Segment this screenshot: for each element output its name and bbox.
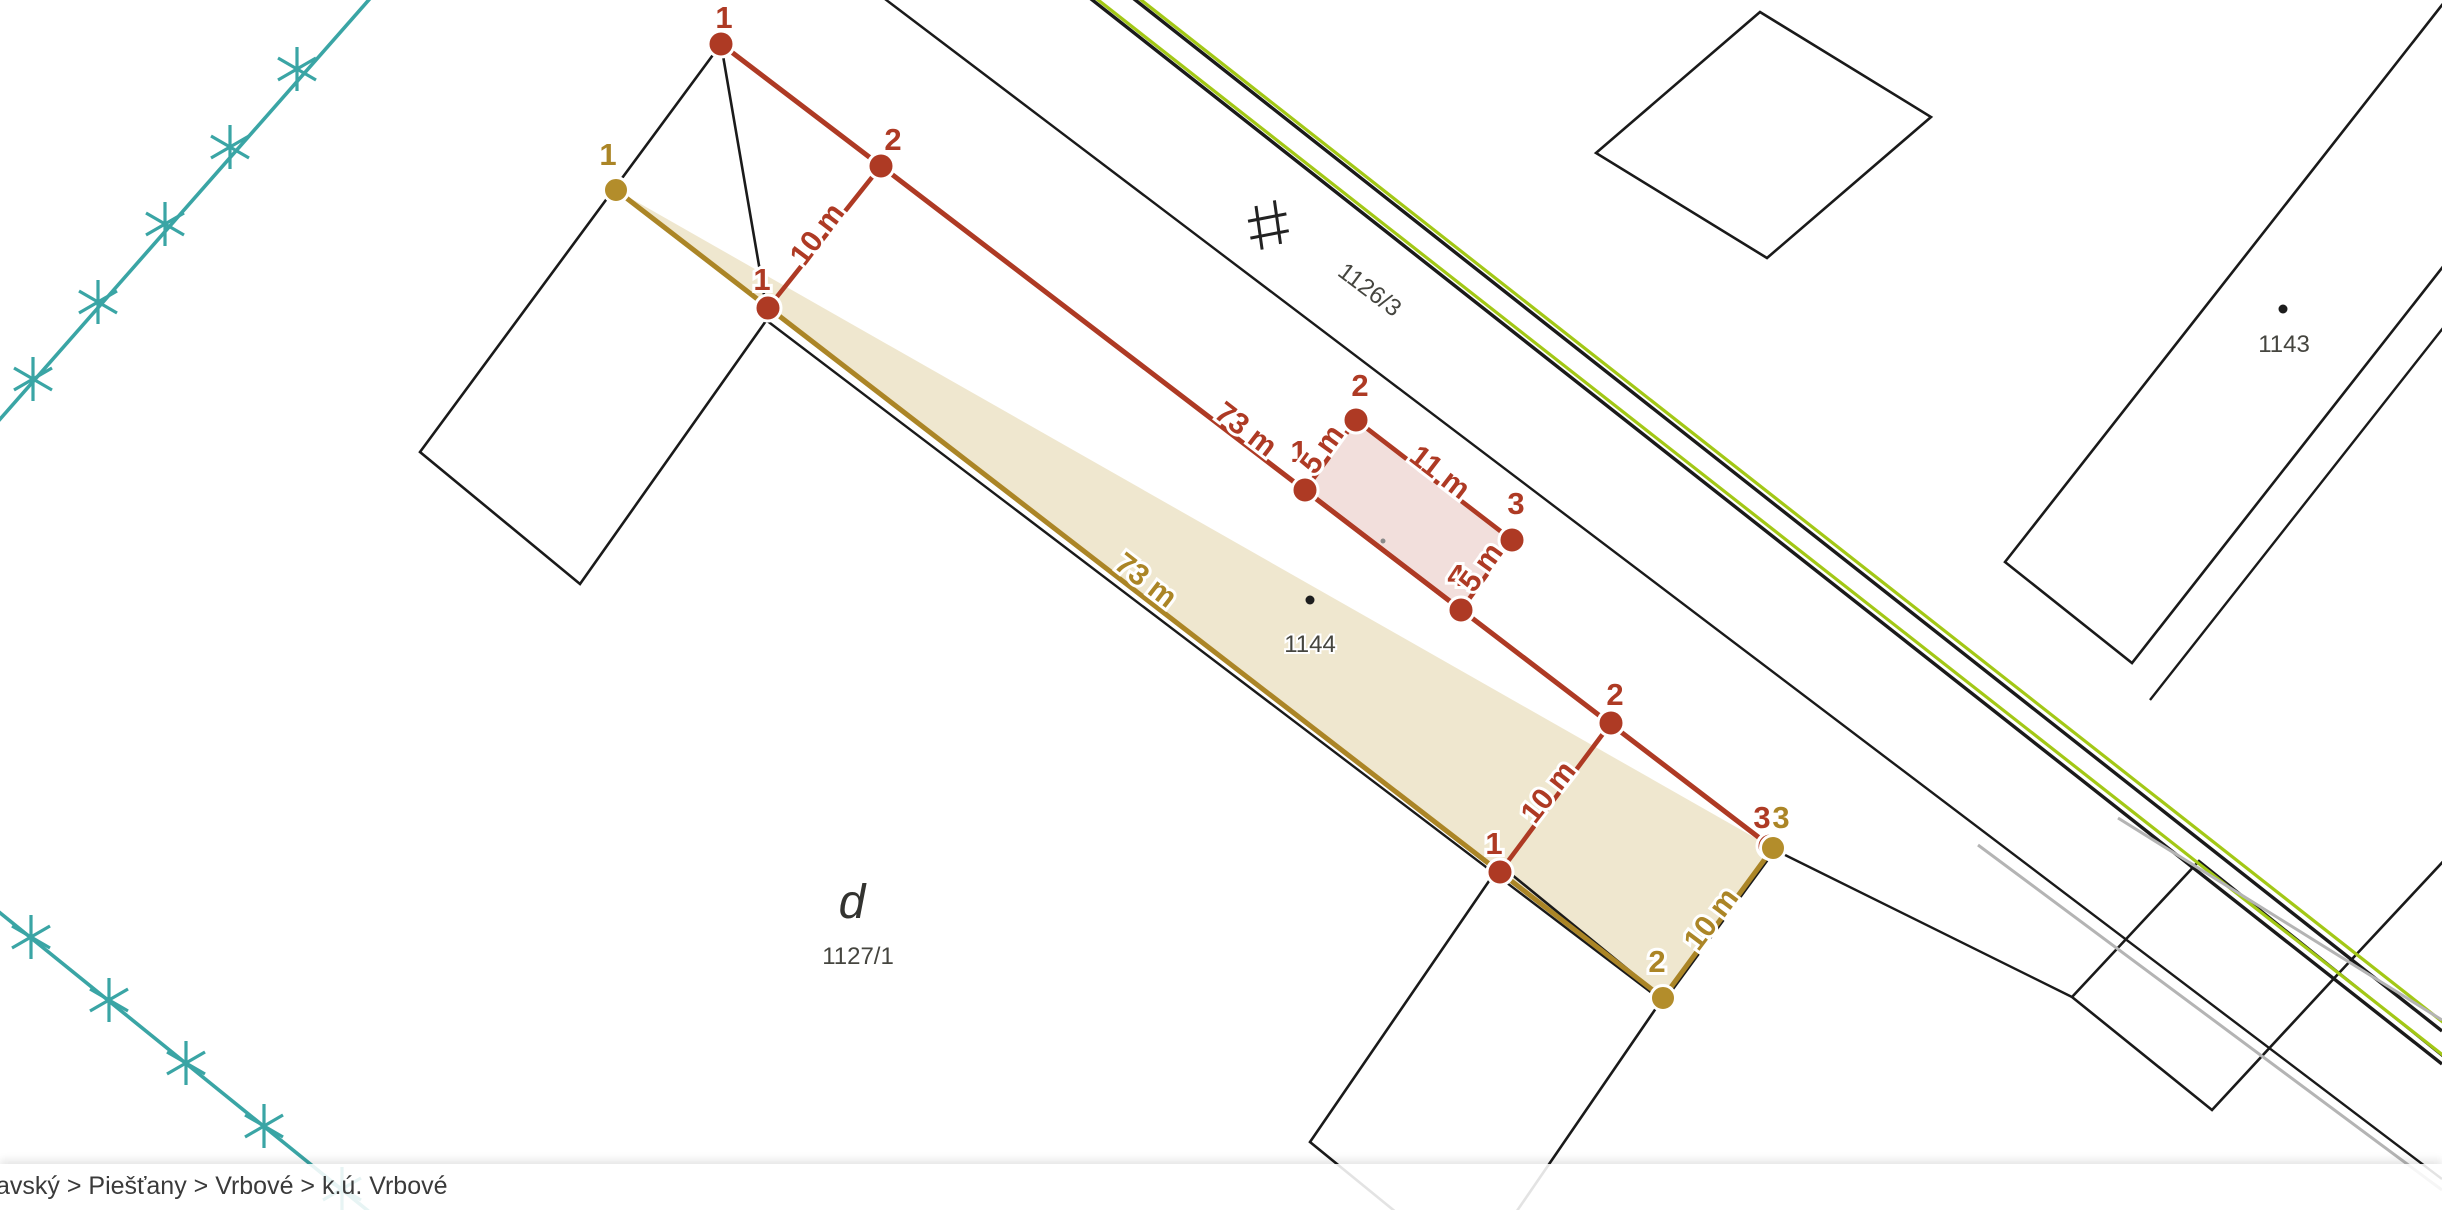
road-edge-right xyxy=(1129,0,2442,1031)
vertex-label: 1 xyxy=(1485,826,1502,861)
vertex-dot[interactable] xyxy=(1343,407,1369,433)
parcel-boundary-to-buildings xyxy=(1775,850,2072,997)
land-use-letter-d: d xyxy=(839,876,867,929)
vertex-label: 3 xyxy=(1507,486,1524,521)
vertex-dot-olive[interactable] xyxy=(604,178,629,203)
gray-path-line-1 xyxy=(1978,845,2442,1190)
olive-measured-area-fill xyxy=(616,190,1773,998)
vertex-label-olive: 1 xyxy=(599,137,616,172)
vertex-label: 2 xyxy=(884,122,901,157)
utility-star-icon xyxy=(146,202,184,246)
utility-star-icon xyxy=(12,915,50,959)
building-bottom-right-1 xyxy=(2072,861,2339,1110)
building-top-right xyxy=(1596,12,1931,258)
fence-symbol-icon xyxy=(1246,199,1291,251)
utility-star-icon xyxy=(167,1041,205,1085)
vertex-dot-olive[interactable] xyxy=(1761,836,1786,861)
parcel-label-1144: 1144 xyxy=(1284,631,1336,658)
vertex-dot[interactable] xyxy=(1487,859,1513,885)
map-canvas[interactable]: 1 2 3 73 m 1 10 m 1 2 10 m 1 2 3 4 5 m 1… xyxy=(0,0,2442,1210)
parcel-label-1126-3: 1126/3 xyxy=(1333,258,1406,323)
building-upper-left xyxy=(420,44,768,584)
buildings xyxy=(420,5,2442,1210)
utility-star-icon xyxy=(79,280,117,324)
utility-star-icon xyxy=(245,1104,283,1148)
vertex-label: 3 xyxy=(1753,800,1770,835)
utility-star-icon xyxy=(90,978,128,1022)
bottom-bar: avský > Piešťany > Vrbové > k.ú. Vrbové xyxy=(0,1164,2442,1210)
road-edge-left xyxy=(1086,0,2442,1064)
vertex-dot[interactable] xyxy=(755,295,781,321)
utility-line-top-left xyxy=(0,0,374,426)
building-right-large xyxy=(2005,5,2442,663)
utility-star-icon xyxy=(211,125,249,169)
parcel-label-1127-1: 1127/1 xyxy=(822,943,894,970)
measure-label-73m-red: 73 m xyxy=(1209,396,1283,464)
vertex-dot[interactable] xyxy=(1499,527,1525,553)
vertex-label: 2 xyxy=(1351,368,1368,403)
parcel-label-1143: 1143 xyxy=(2258,331,2310,358)
vertex-label: 2 xyxy=(1606,677,1623,712)
vertex-dot[interactable] xyxy=(1448,597,1474,623)
vertex-label: 1 xyxy=(715,0,732,35)
small-point xyxy=(1381,539,1386,544)
parcel-point-1143 xyxy=(2279,305,2288,314)
vertex-label-olive: 3 xyxy=(1772,800,1789,835)
measure-label-10m-top: 10 m xyxy=(784,197,852,271)
vertex-dot[interactable] xyxy=(1292,477,1318,503)
parcel-point-1144 xyxy=(1306,596,1315,605)
vertex-label-olive: 2 xyxy=(1648,944,1665,979)
gray-path-line-2 xyxy=(2118,818,2442,1020)
vertex-dot-olive[interactable] xyxy=(1651,986,1676,1011)
parcel-boundary-right xyxy=(2150,328,2442,700)
breadcrumb[interactable]: avský > Piešťany > Vrbové > k.ú. Vrbové xyxy=(0,1172,448,1201)
vertex-label: 1 xyxy=(753,262,770,297)
vertex-dot[interactable] xyxy=(1598,710,1624,736)
